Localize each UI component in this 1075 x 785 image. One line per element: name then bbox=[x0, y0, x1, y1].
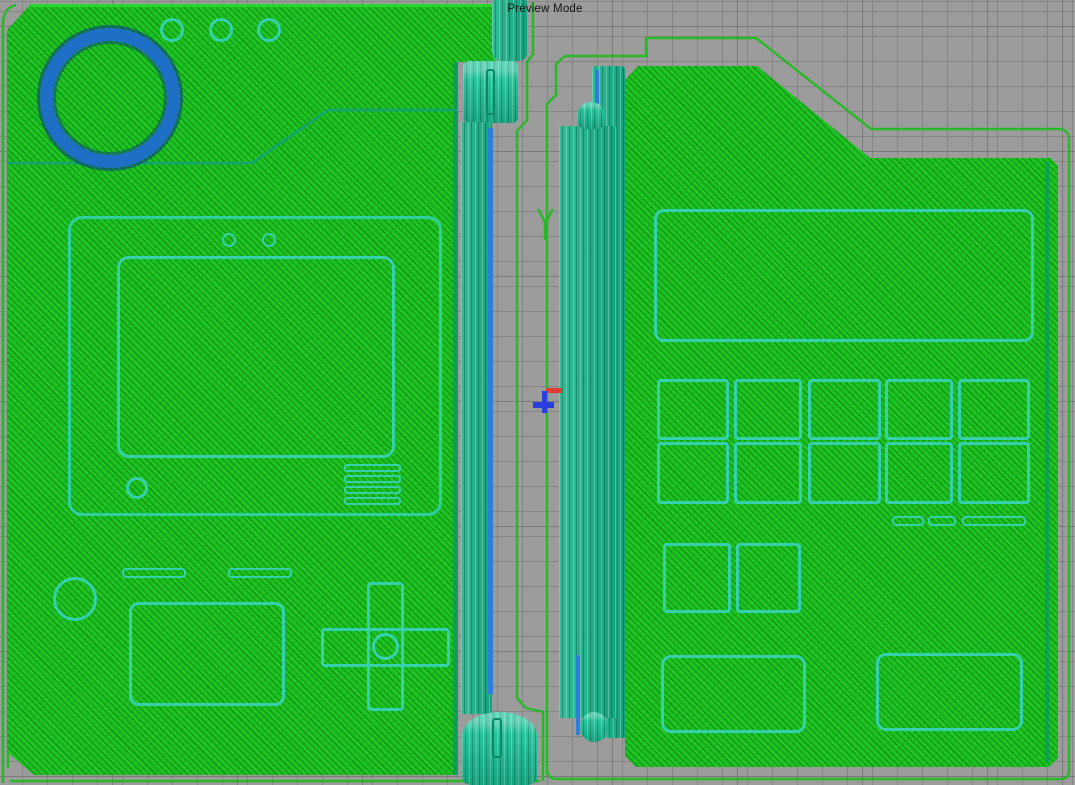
back-hinge-blue-edge-lower bbox=[576, 655, 580, 735]
keypad-key bbox=[885, 442, 953, 504]
keypad-key bbox=[958, 442, 1030, 504]
back-screen-recess bbox=[654, 209, 1034, 342]
origin-y-axis-blue bbox=[533, 402, 554, 408]
origin-x-axis-red bbox=[546, 388, 562, 393]
keypad-key bbox=[657, 442, 729, 504]
square-button bbox=[663, 543, 731, 613]
hinge-knob-top bbox=[577, 102, 605, 129]
origin-axis-marker bbox=[530, 385, 570, 420]
back-hinge-barrel bbox=[559, 126, 618, 718]
bottom-panel bbox=[661, 655, 806, 733]
vent-slot bbox=[928, 516, 956, 526]
bottom-panel bbox=[876, 653, 1023, 731]
vent-slot bbox=[962, 516, 1026, 526]
preview-mode-label: Preview Mode bbox=[0, 3, 1075, 15]
keypad-key bbox=[958, 379, 1030, 440]
keypad-key bbox=[808, 442, 881, 504]
keypad-key bbox=[808, 379, 881, 440]
vent-slot bbox=[892, 516, 924, 526]
slicer-3d-viewport[interactable]: Preview Mode bbox=[0, 0, 1075, 785]
keypad-key bbox=[734, 442, 802, 504]
keypad-key bbox=[885, 379, 953, 440]
keypad-key bbox=[657, 379, 729, 440]
hinge-knob-bottom bbox=[580, 712, 608, 742]
square-button bbox=[736, 543, 801, 613]
back-shell-right-rim bbox=[1045, 162, 1049, 762]
keypad-key bbox=[734, 379, 802, 440]
